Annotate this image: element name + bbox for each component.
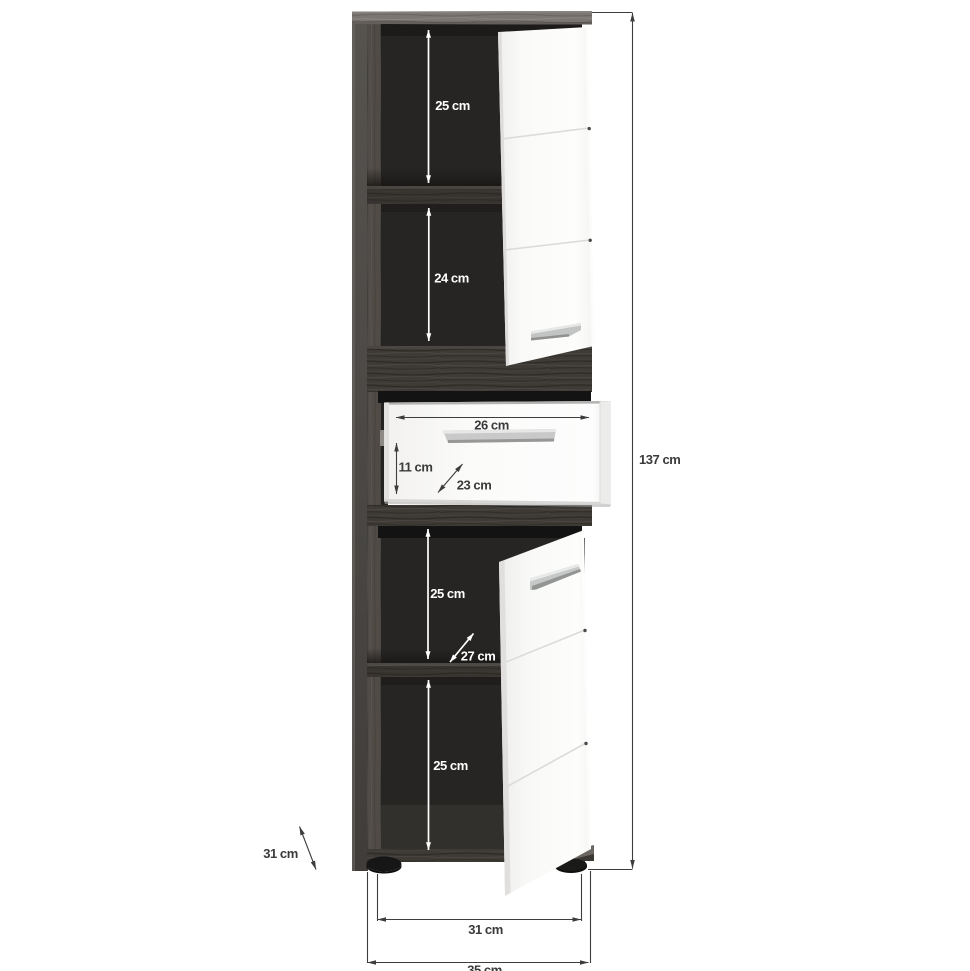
svg-text:31 cm: 31 cm: [468, 922, 503, 937]
svg-text:27 cm: 27 cm: [461, 649, 496, 664]
svg-text:25 cm: 25 cm: [433, 758, 468, 773]
svg-text:25 cm: 25 cm: [430, 586, 465, 601]
svg-text:23 cm: 23 cm: [457, 478, 492, 493]
svg-text:137 cm: 137 cm: [639, 452, 680, 467]
svg-text:35 cm: 35 cm: [467, 963, 502, 971]
svg-text:26 cm: 26 cm: [474, 418, 509, 433]
svg-text:31 cm: 31 cm: [263, 846, 298, 861]
svg-text:11 cm: 11 cm: [399, 460, 433, 475]
svg-text:24 cm: 24 cm: [434, 271, 469, 286]
svg-text:25 cm: 25 cm: [435, 98, 470, 113]
